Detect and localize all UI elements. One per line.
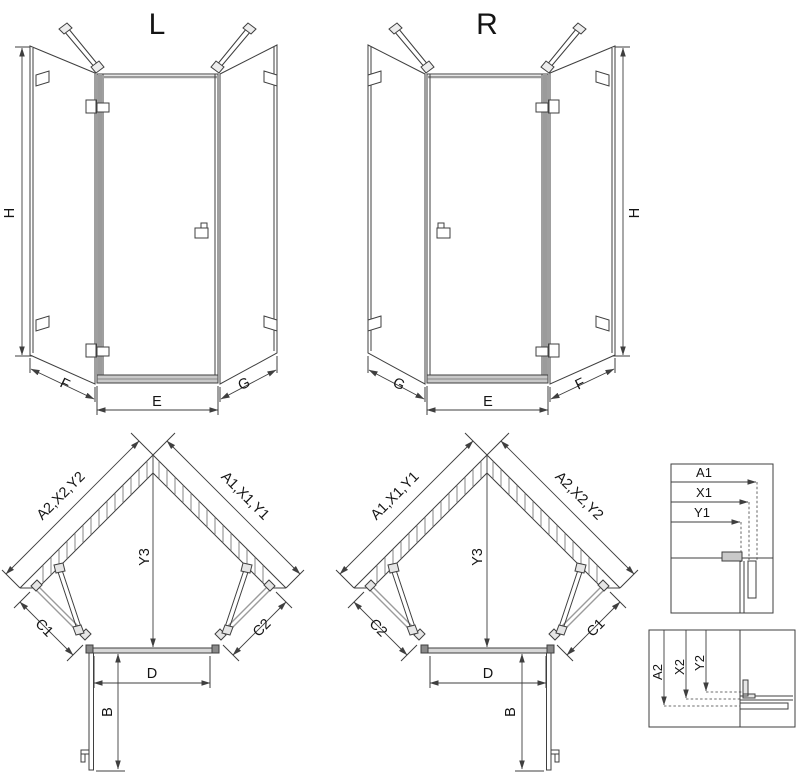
detail-dim-y2: Y2 [692, 655, 707, 671]
dim-label-door-width-r: D [483, 666, 493, 682]
dim-label-panel-right-r: C1 [584, 616, 608, 640]
dim-label-wall-right: A1,X1,Y1 [218, 469, 273, 524]
detail-dim-x2: X2 [672, 659, 687, 675]
dim-label-height-left: H [2, 208, 18, 218]
dim-label-depth-r: Y3 [470, 548, 486, 566]
dim-label-panel-left: C1 [32, 616, 56, 640]
dim-label-height-right: H [627, 208, 643, 218]
detail-dim-x1: X1 [696, 485, 712, 500]
dim-label-front-right: E [483, 394, 493, 410]
plan-view-right-variant: A1,X1,Y1 A2,X2,Y2 Y3 C2 C1 D B [336, 433, 638, 771]
detail-dim-a2: A2 [650, 664, 665, 680]
variant-title-right: R [476, 8, 498, 41]
elevation-view-left-variant: L H F E G [2, 8, 277, 415]
dim-label-wall-left: A2,X2,Y2 [34, 469, 89, 524]
detail-dim-y1: Y1 [694, 505, 710, 520]
dim-label-panel-left-r: C2 [366, 616, 390, 640]
dim-label-wall-left-r: A1,X1,Y1 [368, 469, 423, 524]
variant-title-left: L [149, 8, 166, 41]
dim-label-door-swing-r: B [503, 707, 519, 717]
elevation-view-right-variant: R H G E F [368, 8, 643, 415]
detail-box-vertical-dims: A2 X2 Y2 [649, 630, 795, 727]
dim-label-left-side-right: G [390, 375, 407, 394]
dim-label-front-left: E [152, 394, 162, 410]
dim-label-door-width: D [147, 666, 157, 682]
dim-label-door-swing: B [100, 707, 116, 717]
dim-label-left-side-left: F [57, 375, 72, 393]
plan-view-left-variant: A2,X2,Y2 A1,X1,Y1 Y3 C1 C2 D B [2, 433, 304, 771]
detail-box-horizontal-dims: A1 X1 Y1 [671, 464, 773, 613]
dim-label-depth: Y3 [137, 548, 153, 566]
dim-label-right-side-right: F [573, 375, 588, 393]
dim-label-wall-right-r: A2,X2,Y2 [552, 469, 607, 524]
dim-label-right-side-left: G [236, 375, 253, 394]
detail-dim-a1: A1 [696, 465, 712, 480]
shower-enclosure-technical-drawing: L H F E G A2,X2,Y2 A1,X1,Y1 Y3 C1 C2 D B… [0, 0, 800, 776]
diagram-canvas: L H F E G A2,X2,Y2 A1,X1,Y1 Y3 C1 C2 D B… [0, 0, 800, 776]
dim-label-panel-right: C2 [250, 616, 274, 640]
